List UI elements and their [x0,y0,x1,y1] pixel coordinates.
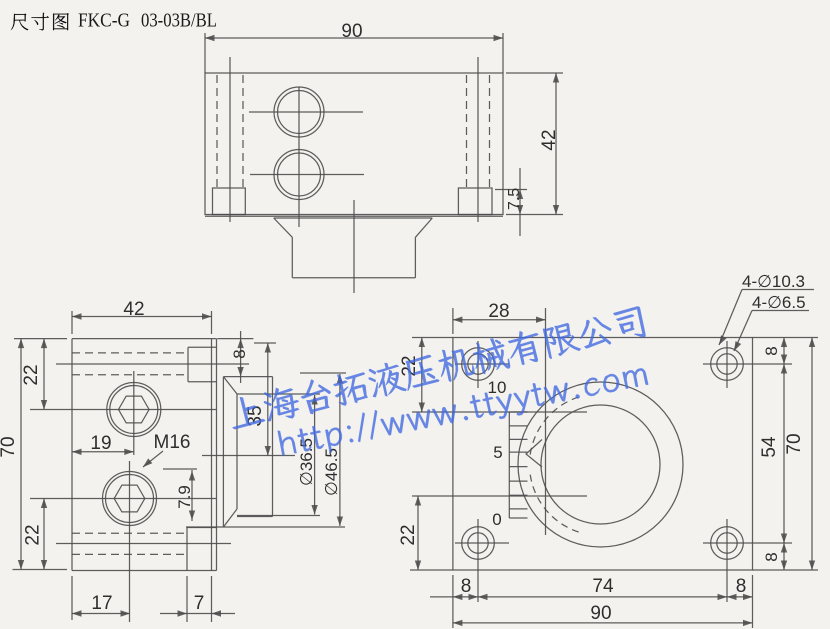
svg-text:22: 22 [398,524,419,545]
svg-text:0: 0 [492,510,501,529]
svg-text:8: 8 [762,552,781,561]
svg-text:M16: M16 [154,432,191,453]
svg-text:70: 70 [784,433,805,454]
svg-text:42: 42 [123,299,144,320]
svg-text:42: 42 [539,129,560,150]
svg-text:90: 90 [341,21,362,42]
svg-text:10: 10 [488,378,507,397]
svg-text:8: 8 [736,576,747,597]
svg-text:03-03B/BL: 03-03B/BL [141,10,217,32]
svg-text:90: 90 [590,603,611,624]
svg-text:22: 22 [21,364,42,385]
svg-text:19: 19 [90,433,111,454]
svg-text:8: 8 [461,576,472,597]
svg-text:5: 5 [493,443,502,462]
svg-text:22: 22 [23,524,44,545]
svg-text:8: 8 [762,346,781,355]
svg-text:7: 7 [194,593,205,614]
svg-text:7.9: 7.9 [175,485,194,509]
svg-text:17: 17 [91,593,112,614]
svg-text:7.5: 7.5 [506,188,523,210]
svg-text:∅46.5: ∅46.5 [322,448,341,496]
svg-text:∅36.5: ∅36.5 [297,438,316,486]
svg-text:8: 8 [230,349,249,358]
svg-text:70: 70 [0,436,19,457]
svg-text:4-∅10.3: 4-∅10.3 [742,272,805,291]
svg-text:28: 28 [488,301,509,322]
svg-text:4-∅6.5: 4-∅6.5 [752,293,806,312]
svg-text:74: 74 [592,576,614,597]
svg-text:FKC-G: FKC-G [78,10,130,32]
svg-text:54: 54 [759,436,780,458]
